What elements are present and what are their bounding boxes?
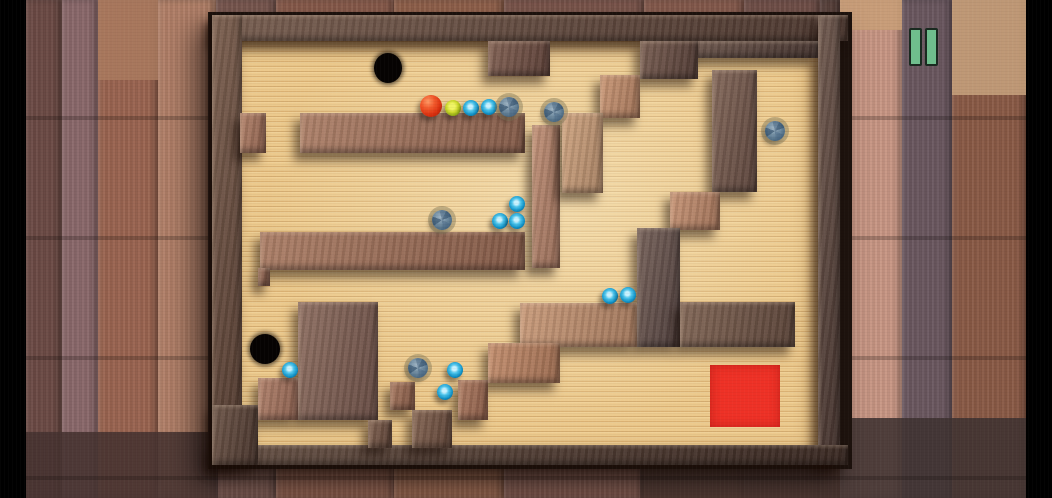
ball-red <box>420 95 442 117</box>
maze-wall <box>368 420 392 448</box>
letterbox-right <box>1026 0 1052 498</box>
ball-blue <box>282 362 298 378</box>
maze-wall <box>680 302 795 347</box>
pause-icon <box>909 28 922 66</box>
ball-blue <box>463 100 479 116</box>
maze-wall <box>212 445 848 465</box>
maze-wall <box>520 303 637 347</box>
maze-wall <box>640 41 698 79</box>
maze-wall <box>212 15 848 41</box>
ball-gray <box>408 358 428 378</box>
maze-wall <box>258 378 298 420</box>
pause-icon <box>925 28 938 66</box>
letterbox-left <box>0 0 26 498</box>
maze-wall <box>488 343 560 383</box>
ball-blue <box>602 288 618 304</box>
maze-wall <box>390 382 415 410</box>
maze-wall <box>458 380 488 420</box>
ball-blue <box>509 213 525 229</box>
maze-wall <box>488 41 550 76</box>
ball-blue <box>492 213 508 229</box>
ball-blue <box>509 196 525 212</box>
maze-wall <box>298 302 378 420</box>
maze-board[interactable] <box>0 0 1052 498</box>
maze-wall <box>670 192 720 230</box>
maze-wall <box>212 405 258 465</box>
maze-wall <box>300 113 525 153</box>
ball-gray <box>432 210 452 230</box>
pause-button[interactable] <box>905 24 938 66</box>
hole <box>374 53 402 83</box>
maze-wall <box>600 75 640 118</box>
maze-wall <box>260 232 525 270</box>
maze-wall <box>637 228 680 347</box>
ball-blue <box>481 99 497 115</box>
ball-blue <box>437 384 453 400</box>
maze-wall <box>532 125 560 268</box>
maze-wall <box>240 113 266 153</box>
ball-gray <box>544 102 564 122</box>
ball-gray <box>765 121 785 141</box>
maze-wall <box>258 268 270 286</box>
maze-wall <box>712 70 757 192</box>
ball-yellow <box>445 100 461 116</box>
ball-blue <box>447 362 463 378</box>
maze-wall <box>212 15 242 465</box>
maze-wall <box>562 113 603 193</box>
maze-wall <box>818 15 840 465</box>
goal-zone <box>710 365 780 427</box>
ball-blue <box>620 287 636 303</box>
game-screen <box>0 0 1052 498</box>
ball-gray <box>499 97 519 117</box>
hole <box>250 334 280 364</box>
maze-wall <box>412 410 452 448</box>
